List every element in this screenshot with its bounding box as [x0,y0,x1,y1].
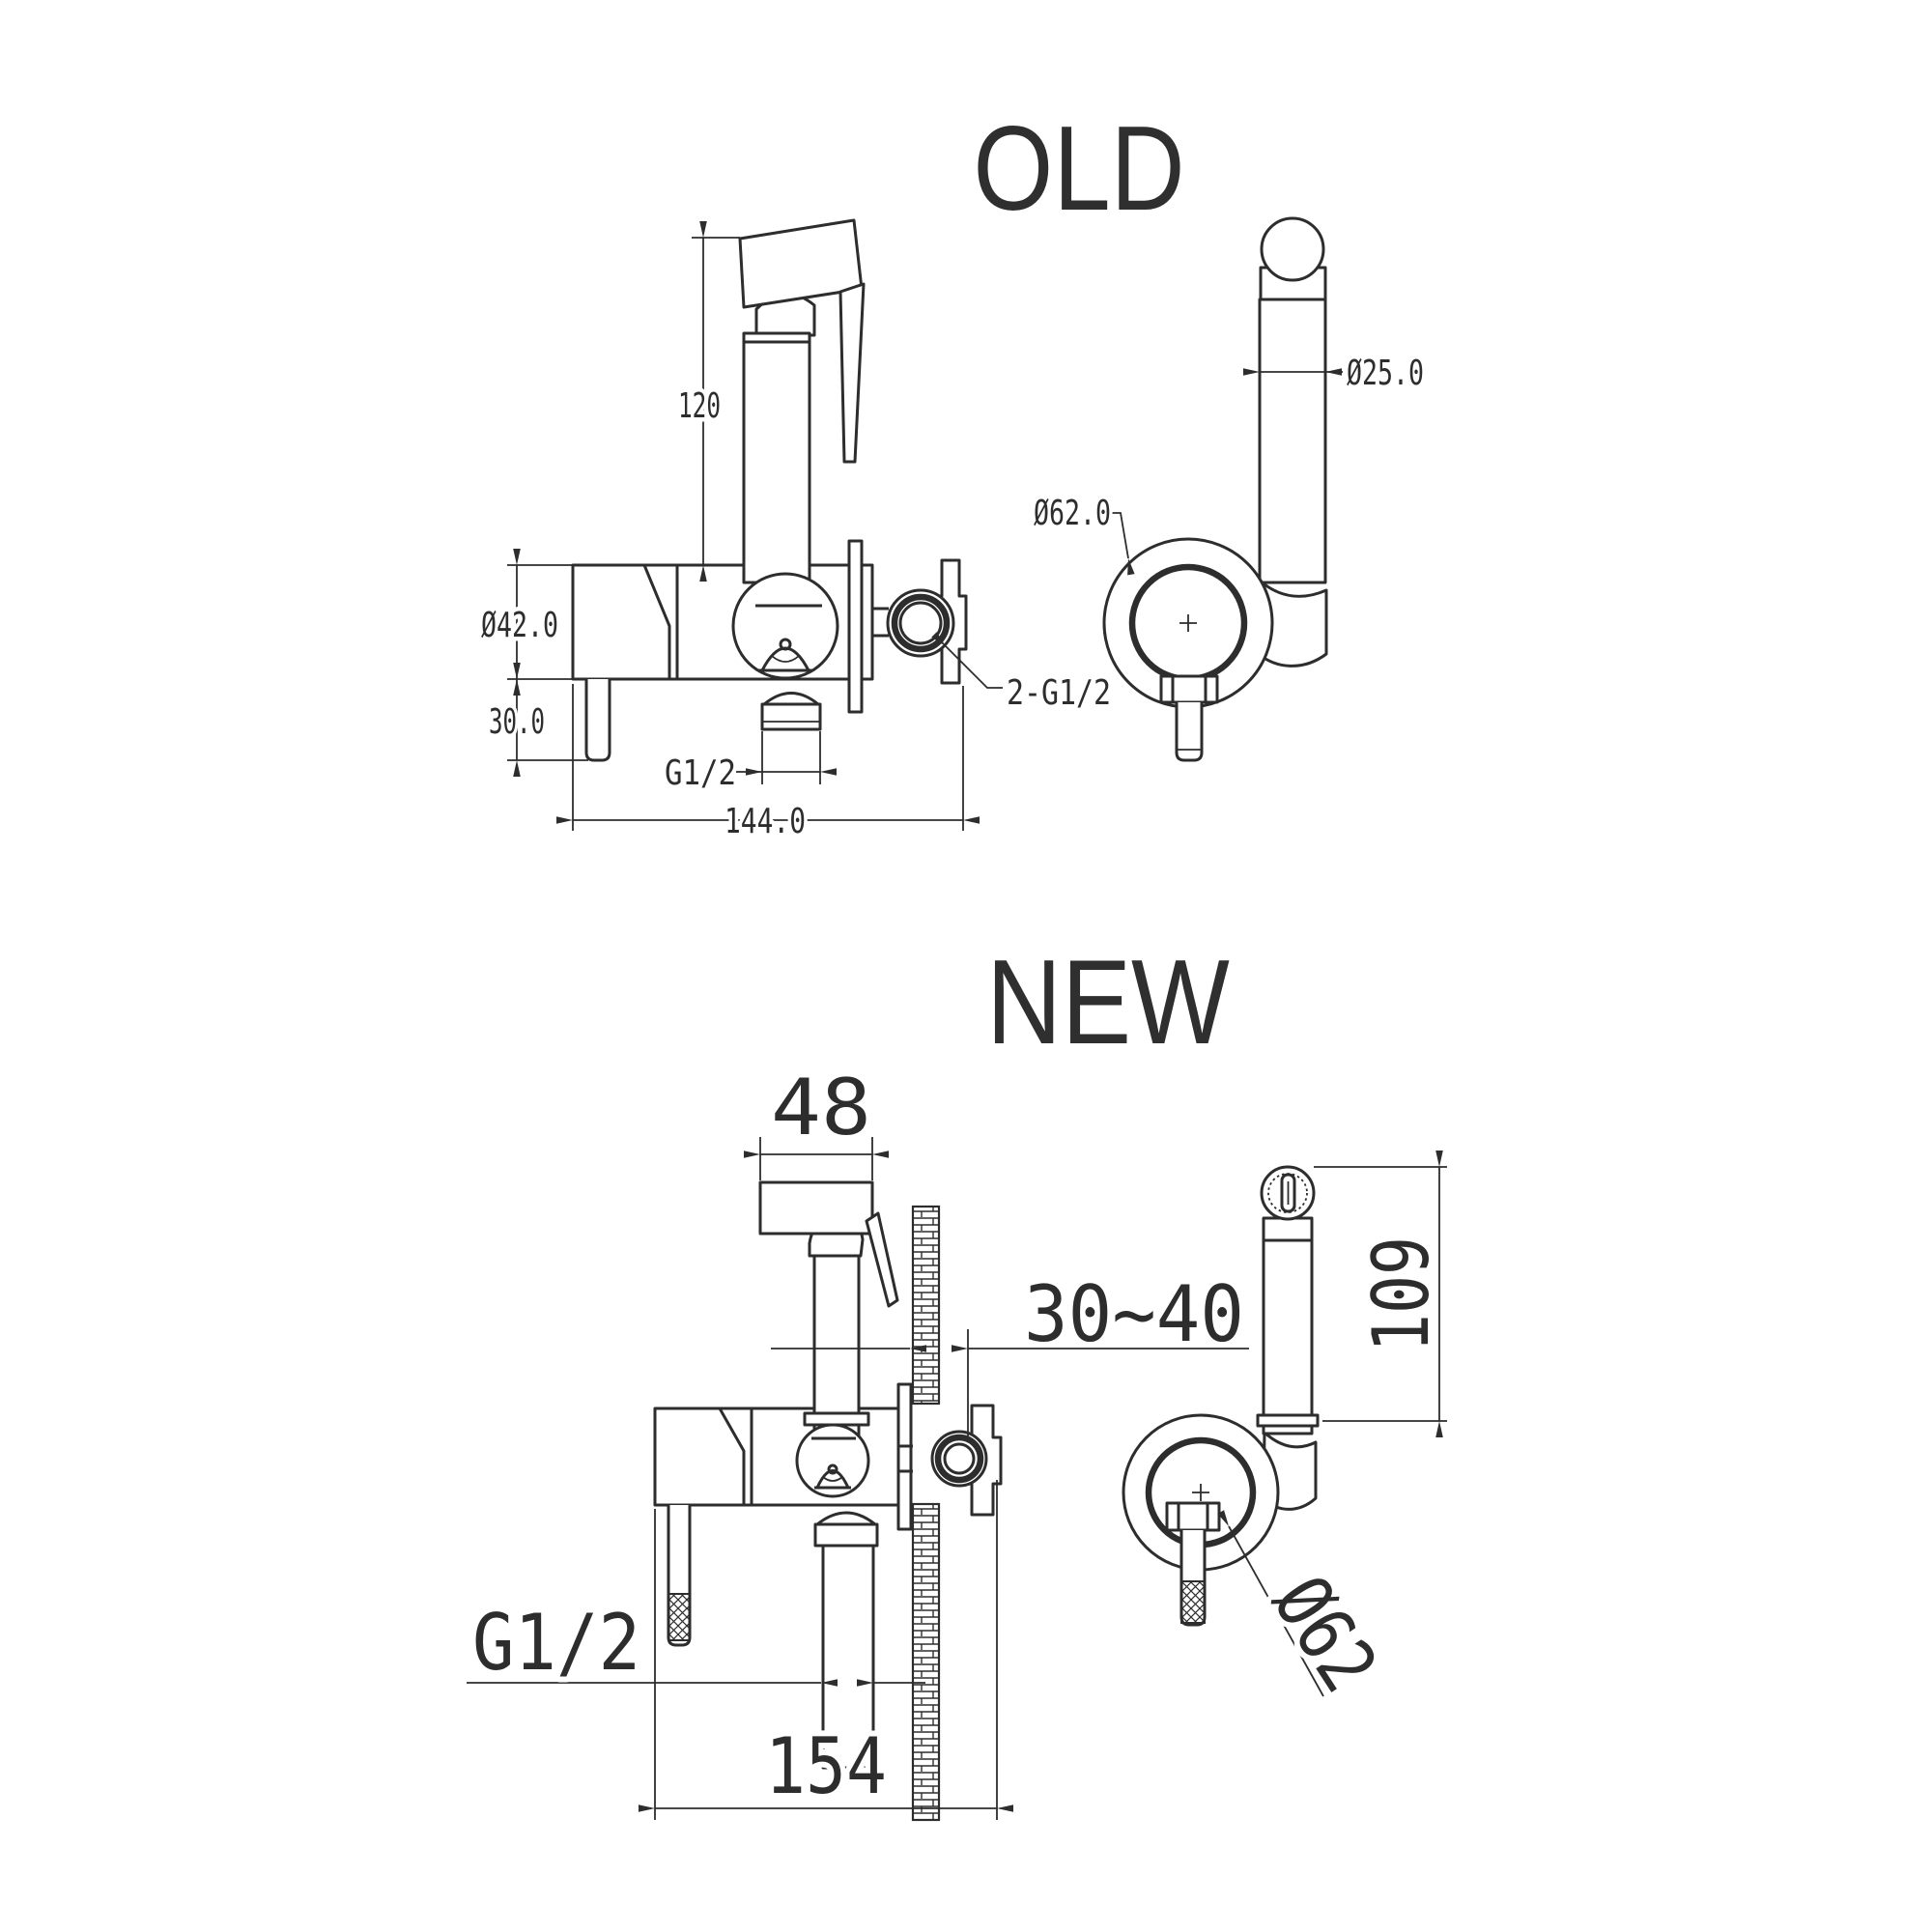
old-sprayer-lever [840,284,864,462]
new-dim-overall-width: 154 [765,1721,887,1811]
new-wall-upper [913,1207,939,1404]
old-dim-connection-note: 2-G1/2 [1007,673,1111,713]
old-dim-height: 120 [678,386,721,426]
old-sprayer-barrel [744,333,810,582]
old-title: OLD [973,100,1184,235]
new-dim-head-width: 48 [771,1063,871,1152]
old-dim-inlet-drop: 30.0 [489,702,545,742]
new-holder-boss [797,1425,868,1496]
old-dim-outlet-thread: G1/2 [665,753,736,793]
new-section: NEW [467,935,1447,1820]
new-sprayer-head [760,1182,872,1234]
new-side-nut [1167,1503,1219,1530]
old-dim-holder-diameter: Ø62.0 [1034,494,1111,533]
new-sprayer-lever [867,1213,897,1306]
new-inlet-pin-knurl [668,1594,690,1640]
drawing-sheet: OLD [0,0,1932,1932]
new-dim-sprayer-height: 109 [1356,1236,1446,1352]
new-side-handle-knurl [1181,1581,1205,1623]
new-side-view: 109 Ø62 [1123,1167,1447,1707]
old-side-nut [1161,676,1217,702]
old-dim-head-diameter: Ø25.0 [1347,354,1424,393]
new-sprayer-barrel [814,1256,859,1413]
new-front-view: 48 30~40 G1/2 154 [467,1063,1249,1820]
new-side-sprayer-barrel [1264,1218,1312,1415]
new-dim-wall-thickness: 30~40 [1024,1269,1244,1359]
new-dim-outlet-thread: G1/2 [472,1598,640,1688]
new-title: NEW [986,935,1230,1069]
old-dim-overall-width: 144.0 [724,802,806,841]
old-side-handle [1177,702,1202,760]
old-inlet-pin [586,679,610,760]
old-section: OLD [481,100,1424,841]
new-wall-plate [898,1384,911,1529]
new-wall-lower [913,1504,939,1820]
new-outlet-nut [815,1524,877,1546]
new-dim-holder-diameter: Ø62 [1256,1561,1394,1707]
old-side-sprayer-head [1262,218,1323,280]
old-wall-plate [849,541,862,712]
old-outlet-nut [762,704,820,729]
old-side-sprayer-barrel [1260,299,1325,582]
technical-drawing: OLD [0,0,1932,1932]
old-dim-body-diameter: Ø42.0 [481,606,558,645]
old-front-view: 120 Ø42.0 30.0 G1/2 144.0 2-G1/2 [481,220,1111,841]
